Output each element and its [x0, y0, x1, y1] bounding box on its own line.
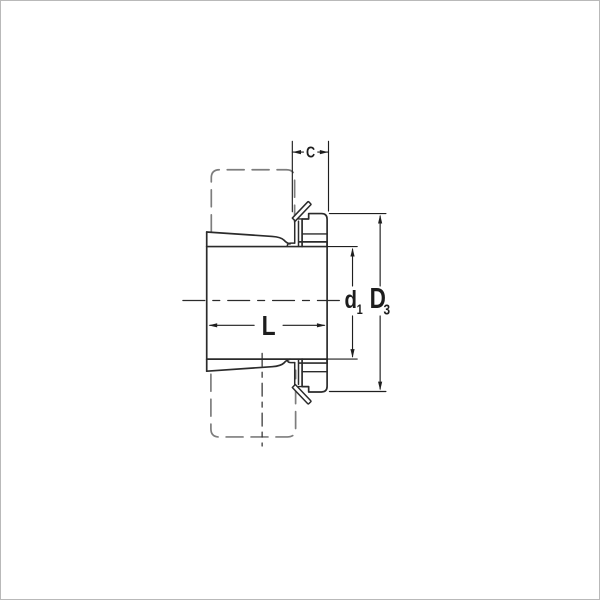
arrow-c-left — [293, 150, 301, 154]
locknut — [299, 214, 328, 392]
arrow-L-left — [209, 323, 218, 327]
drawing-canvas: C d 1 D 3 L — [0, 0, 600, 600]
arrow-D3-up — [378, 215, 382, 224]
lockwasher — [287, 202, 311, 404]
dimension-lines — [210, 141, 386, 391]
arrow-L-right — [317, 323, 326, 327]
sleeve-outline — [207, 232, 327, 371]
lockwasher-bottom-leg — [295, 359, 299, 386]
sleeve-bottom-taper — [207, 359, 290, 371]
arrow-d1-down — [350, 349, 354, 358]
arrow-c-right — [320, 150, 328, 154]
arrow-d1-up — [350, 248, 354, 257]
lockwasher-top-leg — [295, 220, 299, 247]
locknut-bottom — [302, 359, 327, 392]
phantom-bearing-bottom — [211, 370, 296, 437]
label-d1-base: d — [344, 285, 356, 313]
phantom-outlines — [211, 170, 296, 437]
arrow-D3-down — [378, 382, 382, 391]
label-c: C — [306, 143, 315, 160]
adapter-sleeve-diagram: C d 1 D 3 L — [1, 1, 599, 599]
sleeve-top-taper — [207, 232, 290, 244]
label-L: L — [262, 311, 276, 342]
phantom-bearing-top — [211, 170, 294, 232]
label-d1-subscript: 1 — [357, 302, 363, 317]
label-D3-subscript: 3 — [384, 301, 391, 317]
